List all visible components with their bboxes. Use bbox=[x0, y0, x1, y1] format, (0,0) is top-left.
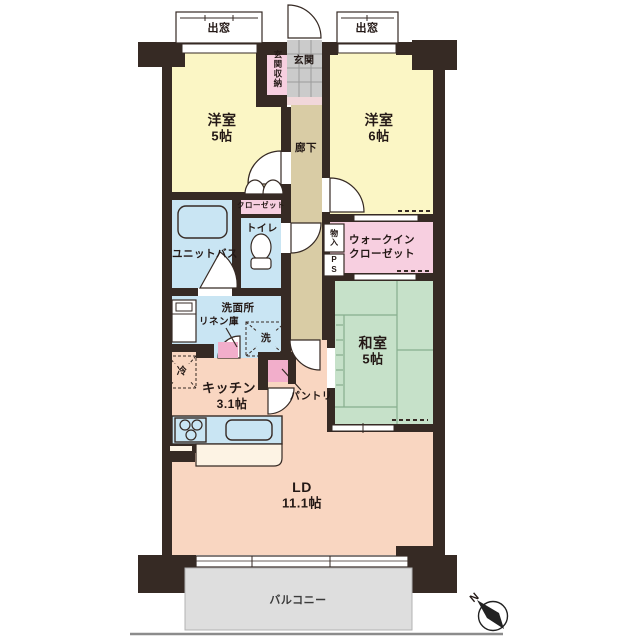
balcony-window bbox=[196, 556, 408, 567]
floor-plan-drawing bbox=[0, 0, 640, 640]
wic-sliding-door-bottom bbox=[354, 274, 416, 280]
compass bbox=[477, 600, 508, 631]
window-right-wall-line bbox=[338, 44, 396, 53]
japanese-room-name: 和室 bbox=[359, 335, 388, 351]
balcony-label: バルコニー bbox=[269, 595, 326, 608]
unit-bath-label: ユニットバス bbox=[172, 248, 238, 260]
kitchen-name: キッチン bbox=[202, 382, 256, 397]
wall-right bbox=[433, 55, 445, 557]
entrance-storage-label: 玄関収納 bbox=[272, 50, 282, 88]
hallway-label: 廊下 bbox=[295, 142, 317, 154]
linen-label: リネン庫 bbox=[199, 318, 239, 329]
washroom-label: 洗面所 bbox=[222, 302, 255, 314]
toilet-label: トイレ bbox=[246, 223, 278, 235]
room-ld-center-floor bbox=[291, 338, 333, 555]
kitchen-sink bbox=[226, 420, 272, 440]
floor-plan: 出窓 出窓 玄関収納 玄関 廊下 洋室 5帖 洋室 6帖 クローゼット ユニット… bbox=[0, 0, 640, 640]
entrance-label: 玄関 bbox=[294, 55, 315, 67]
toilet-seat bbox=[251, 258, 271, 269]
japanese-room-size: 5帖 bbox=[362, 353, 383, 368]
closet-label: クローゼット bbox=[237, 202, 285, 211]
wall-left bbox=[162, 42, 172, 568]
washer-label: 洗 bbox=[261, 333, 272, 345]
toilet-bowl bbox=[251, 234, 271, 260]
western-room6-size: 6帖 bbox=[368, 130, 389, 145]
wic-sliding-door-top bbox=[354, 215, 418, 221]
pantry-label: パントリ bbox=[290, 391, 333, 403]
window-left-wall-line bbox=[182, 44, 257, 53]
western-room5-name: 洋室 bbox=[208, 112, 237, 128]
kitchen-size: 3.1帖 bbox=[217, 398, 248, 412]
fridge-label: 冷 bbox=[177, 366, 188, 378]
wic-label-line2: クローゼット bbox=[349, 248, 415, 260]
western-room6-name: 洋室 bbox=[365, 112, 394, 128]
wic-label-line1: ウォークイン bbox=[349, 234, 415, 246]
bay-window-right-label: 出窓 bbox=[356, 23, 379, 36]
room-japanese-floor bbox=[335, 281, 433, 424]
entrance-step bbox=[287, 97, 322, 105]
storage-niche-label: 物入 bbox=[329, 229, 338, 247]
pipe-space-label: PS bbox=[329, 255, 338, 275]
bay-window-left-label: 出窓 bbox=[208, 23, 231, 36]
counter-extension bbox=[196, 444, 282, 466]
bathtub bbox=[178, 206, 227, 238]
living-dining-size: 11.1帖 bbox=[282, 497, 322, 512]
western-room5-size: 5帖 bbox=[211, 130, 232, 145]
entrance-door bbox=[288, 5, 321, 38]
pantry-box bbox=[268, 360, 288, 382]
room-ld-right-floor bbox=[327, 424, 433, 555]
living-dining-name: LD bbox=[292, 479, 312, 495]
